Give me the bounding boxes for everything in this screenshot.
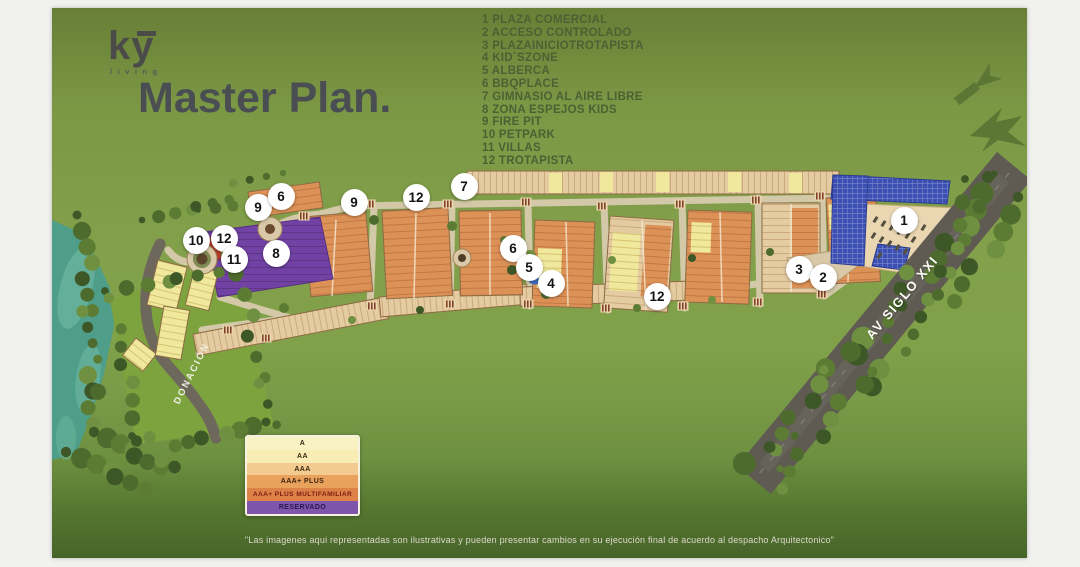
compass-arrows [910, 36, 1027, 151]
disclaimer-text: "Las imagenes aqui representadas son ilu… [52, 535, 1027, 545]
map-marker-10: 10 [183, 227, 210, 254]
housing-legend-row: AA [247, 450, 358, 463]
map-marker-4: 4 [538, 270, 565, 297]
logo-macron-bar [137, 31, 156, 36]
amenities-legend: 1 PLAZA COMERCIAL2 ACCESO CONTROLADO3 PL… [482, 14, 644, 168]
amenity-item: 8 ZONA ESPEJOS KIDS [482, 104, 644, 117]
housing-legend-row: A [247, 437, 358, 450]
map-marker-12: 12 [403, 184, 430, 211]
amenity-item: 1 PLAZA COMERCIAL [482, 14, 644, 27]
housing-legend-row: AAA+ PLUS MULTIFAMILIAR [247, 488, 358, 501]
map-marker-3: 3 [786, 256, 813, 283]
superblock-row [304, 195, 880, 312]
map-marker-7: 7 [451, 173, 478, 200]
map-marker-8: 8 [263, 240, 290, 267]
water-body [52, 220, 114, 460]
page-title: Master Plan. [138, 74, 391, 123]
map-marker-9: 9 [341, 189, 368, 216]
map-marker-1: 1 [891, 207, 918, 234]
map-marker-12: 12 [644, 283, 671, 310]
housing-legend-row: RESERVADO [247, 501, 358, 514]
amenity-item: 9 FIRE PIT [482, 116, 644, 129]
housing-type-legend: AAAAAAAAA+ PLUSAAA+ PLUS MULTIFAMILIARRE… [245, 435, 360, 516]
brand-logo: ky living [108, 26, 163, 76]
amenity-item: 10 PETPARK [482, 129, 644, 142]
amenity-item: 3 PLAZAINICIOTROTAPISTA [482, 40, 644, 53]
arrow-icon [970, 108, 1026, 151]
amenity-item: 2 ACCESO CONTROLADO [482, 27, 644, 40]
map-marker-6: 6 [268, 183, 295, 210]
top-lot-strip [467, 171, 839, 194]
amenity-item: 5 ALBERCA [482, 65, 644, 78]
map-marker-2: 2 [810, 264, 837, 291]
map-marker-5: 5 [516, 254, 543, 281]
housing-legend-row: AAA [247, 463, 358, 476]
arrow-icon [951, 63, 1003, 110]
housing-legend-row: AAA+ PLUS [247, 475, 358, 488]
page-frame: ky living Master Plan. 1 PLAZA COMERCIAL… [0, 0, 1080, 567]
amenity-item: 11 VILLAS [482, 142, 644, 155]
map-marker-11: 11 [221, 246, 248, 273]
master-plan-slide: ky living Master Plan. 1 PLAZA COMERCIAL… [52, 8, 1027, 558]
amenity-item: 12 TROTAPISTA [482, 155, 644, 168]
amenity-item: 7 GIMNASIO AL AIRE LIBRE [482, 91, 644, 104]
amenity-item: 6 BBQPLACE [482, 78, 644, 91]
amenity-item: 4 KID´SZONE [482, 52, 644, 65]
